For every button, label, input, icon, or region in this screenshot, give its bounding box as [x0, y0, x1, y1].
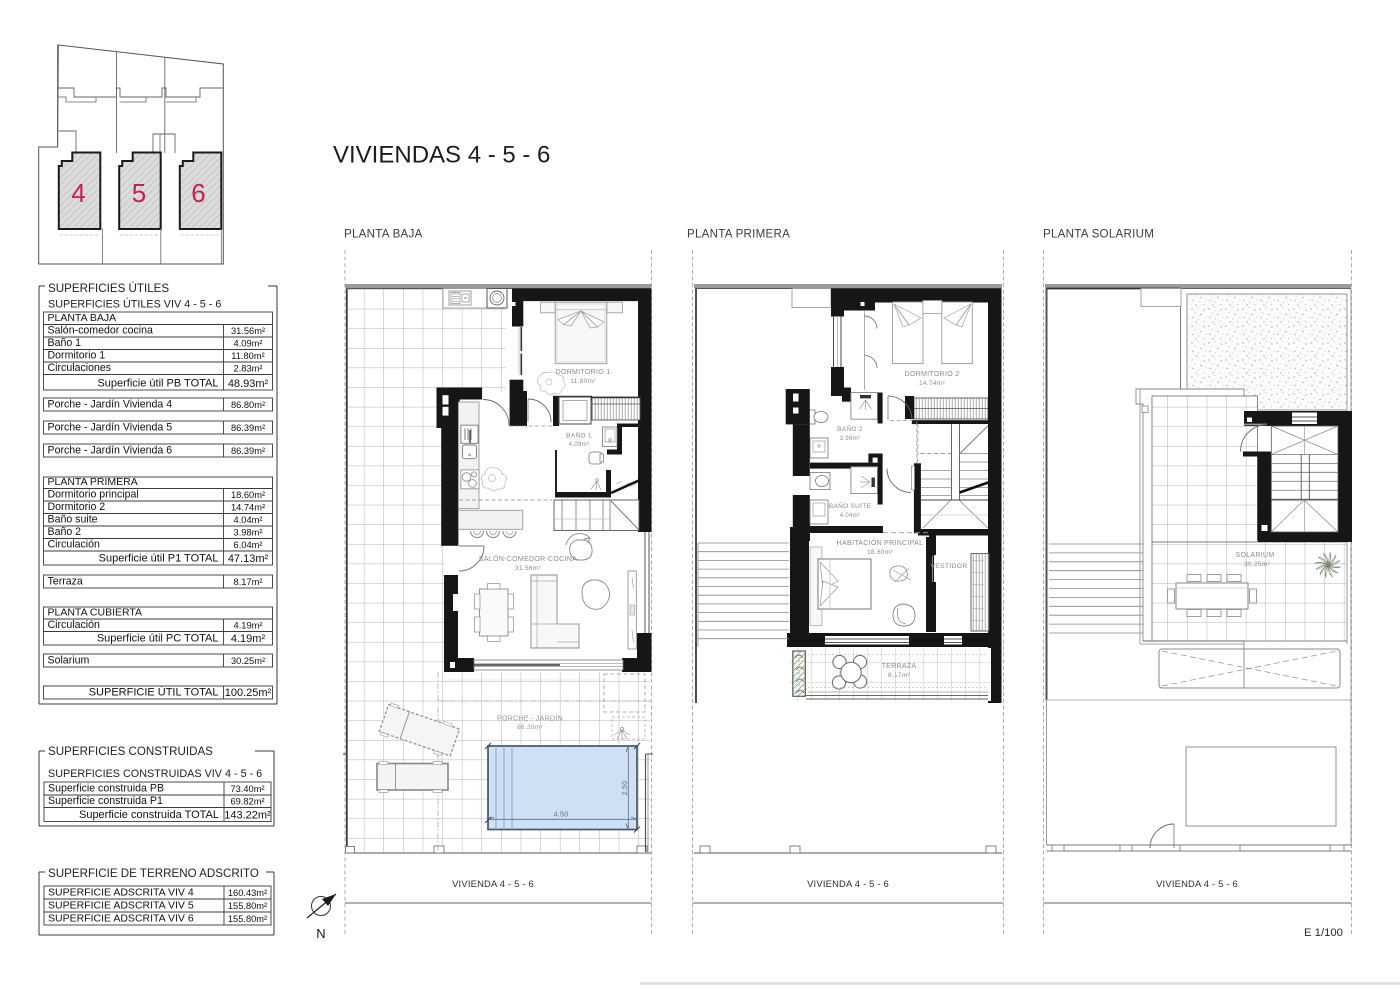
- svg-text:SALÓN-COMEDOR-COCINA: SALÓN-COMEDOR-COCINA: [479, 554, 577, 563]
- svg-text:HABITACIÓN PRINCIPAL: HABITACIÓN PRINCIPAL: [837, 538, 924, 547]
- svg-text:Superficie útil PC TOTAL: Superficie útil PC TOTAL: [97, 633, 219, 645]
- svg-text:TERRAZA: TERRAZA: [882, 663, 917, 670]
- svg-text:DORMITORIO 1: DORMITORIO 1: [556, 369, 611, 376]
- svg-text:4.19m²: 4.19m²: [231, 633, 266, 645]
- svg-text:SUPERFICIES ÚTILES: SUPERFICIES ÚTILES: [48, 282, 169, 295]
- svg-text:48.93m²: 48.93m²: [228, 378, 269, 390]
- svg-text:SUPERFICIE ÚTIL TOTAL: SUPERFICIE ÚTIL TOTAL: [89, 686, 219, 699]
- svg-text:Dormitorio 2: Dormitorio 2: [48, 501, 106, 513]
- svg-text:SUPERFICIE ADSCRITA VIV 5: SUPERFICIE ADSCRITA VIV 5: [48, 900, 194, 912]
- svg-text:BAÑO 1: BAÑO 1: [566, 431, 592, 440]
- svg-text:PLANTA PRIMERA: PLANTA PRIMERA: [48, 476, 138, 488]
- svg-text:3.98m²: 3.98m²: [234, 527, 263, 537]
- svg-text:SUPERFICIE ADSCRITA VIV 6: SUPERFICIE ADSCRITA VIV 6: [48, 913, 194, 925]
- svg-text:86.39m²: 86.39m²: [517, 724, 543, 731]
- svg-text:160.43m²: 160.43m²: [228, 888, 267, 898]
- svg-text:2.50: 2.50: [622, 781, 629, 796]
- svg-text:Superficie construida PB: Superficie construida PB: [48, 783, 164, 795]
- svg-text:14.74m²: 14.74m²: [919, 380, 945, 387]
- svg-text:4.09m²: 4.09m²: [569, 442, 589, 448]
- svg-text:86.80m²: 86.80m²: [231, 400, 265, 410]
- svg-text:4.19m²: 4.19m²: [234, 620, 263, 630]
- svg-text:VIVIENDA 4 - 5 - 6: VIVIENDA 4 - 5 - 6: [452, 878, 534, 889]
- svg-text:BAÑO 2: BAÑO 2: [837, 424, 863, 433]
- svg-text:6: 6: [191, 178, 205, 208]
- svg-text:PORCHE - JARDÍN: PORCHE - JARDÍN: [497, 714, 563, 723]
- svg-text:PLANTA BAJA: PLANTA BAJA: [344, 228, 423, 241]
- svg-text:3.98m²: 3.98m²: [840, 436, 860, 442]
- svg-text:SUPERFICIES CONSTRUIDAS VIV 4: SUPERFICIES CONSTRUIDAS VIV 4 - 5 - 6: [48, 768, 262, 780]
- svg-text:Superficie útil P1 TOTAL: Superficie útil P1 TOTAL: [99, 553, 219, 565]
- svg-text:4: 4: [71, 178, 85, 208]
- svg-text:4.50: 4.50: [554, 812, 569, 819]
- svg-text:SUPERFICIES ÚTILES VIV 4 - 5 -: SUPERFICIES ÚTILES VIV 4 - 5 - 6: [48, 298, 221, 311]
- svg-text:PLANTA CUBIERTA: PLANTA CUBIERTA: [48, 607, 143, 619]
- svg-text:2.83m²: 2.83m²: [234, 363, 263, 373]
- svg-text:5: 5: [132, 178, 146, 208]
- svg-text:30.25m²: 30.25m²: [231, 656, 265, 666]
- svg-text:8.17m²: 8.17m²: [234, 577, 263, 587]
- svg-text:11.80m²: 11.80m²: [231, 351, 264, 361]
- svg-text:VIVIENDAS 4 - 5 - 6: VIVIENDAS 4 - 5 - 6: [333, 142, 550, 169]
- svg-text:Dormitorio 1: Dormitorio 1: [48, 350, 106, 362]
- svg-text:155.80m²: 155.80m²: [228, 901, 267, 911]
- svg-text:4.04m²: 4.04m²: [840, 513, 860, 519]
- svg-text:SOLARIUM: SOLARIUM: [1236, 552, 1275, 559]
- svg-text:DORMITORIO 2: DORMITORIO 2: [905, 371, 960, 378]
- svg-text:Superficie útil PB TOTAL: Superficie útil PB TOTAL: [97, 378, 218, 390]
- svg-text:11.80m²: 11.80m²: [570, 378, 596, 385]
- svg-text:86.39m²: 86.39m²: [231, 446, 265, 456]
- svg-text:VIVIENDA 4 - 5 - 6: VIVIENDA 4 - 5 - 6: [1156, 878, 1238, 889]
- svg-text:SUPERFICIE ADSCRITA VIV 4: SUPERFICIE ADSCRITA VIV 4: [48, 887, 194, 899]
- svg-text:Porche - Jardín Vivienda 6: Porche - Jardín Vivienda 6: [48, 445, 173, 457]
- svg-text:47.13m²: 47.13m²: [228, 553, 269, 565]
- svg-text:Porche - Jardín Vivienda 5: Porche - Jardín Vivienda 5: [48, 422, 173, 434]
- svg-text:Terraza: Terraza: [48, 576, 83, 588]
- svg-text:6.04m²: 6.04m²: [234, 540, 263, 550]
- svg-text:Solarium: Solarium: [48, 655, 90, 667]
- svg-text:VESTIDOR: VESTIDOR: [930, 563, 967, 570]
- svg-text:143.22m²: 143.22m²: [224, 809, 271, 821]
- svg-text:73.40m²: 73.40m²: [230, 784, 264, 794]
- svg-text:69.82m²: 69.82m²: [230, 796, 264, 806]
- svg-text:Porche - Jardín Vivienda 4: Porche - Jardín Vivienda 4: [48, 399, 173, 411]
- svg-text:PLANTA BAJA: PLANTA BAJA: [48, 312, 117, 324]
- svg-text:SUPERFICIE DE TERRENO ADSCRITO: SUPERFICIE DE TERRENO ADSCRITO: [48, 867, 259, 880]
- svg-text:100.25m²: 100.25m²: [225, 687, 272, 699]
- svg-text:31.56m²: 31.56m²: [231, 326, 265, 336]
- svg-text:18.60m²: 18.60m²: [231, 490, 265, 500]
- svg-text:PLANTA PRIMERA: PLANTA PRIMERA: [687, 228, 790, 241]
- svg-text:Baño 1: Baño 1: [48, 337, 82, 349]
- svg-text:30.25m²: 30.25m²: [1244, 561, 1270, 568]
- svg-text:SUPERFICIES CONSTRUIDAS: SUPERFICIES CONSTRUIDAS: [48, 745, 213, 758]
- svg-text:18.60m²: 18.60m²: [867, 549, 893, 556]
- svg-text:Baño 2: Baño 2: [48, 526, 82, 538]
- svg-text:155.80m²: 155.80m²: [228, 914, 267, 924]
- svg-text:Circulación: Circulación: [48, 539, 101, 551]
- svg-text:VIVIENDA 4 - 5 - 6: VIVIENDA 4 - 5 - 6: [807, 878, 889, 889]
- svg-text:86.39m²: 86.39m²: [231, 423, 265, 433]
- svg-text:PLANTA SOLARIUM: PLANTA SOLARIUM: [1043, 228, 1154, 241]
- svg-text:Baño suite: Baño suite: [48, 514, 98, 526]
- svg-text:Circulación: Circulación: [48, 619, 101, 631]
- svg-text:E 1/100: E 1/100: [1304, 927, 1343, 939]
- svg-text:BAÑO SUITE: BAÑO SUITE: [829, 501, 872, 510]
- svg-text:8.17m²: 8.17m²: [888, 672, 911, 679]
- svg-text:Dormitorio principal: Dormitorio principal: [48, 489, 139, 501]
- svg-text:Superficie construida P1: Superficie construida P1: [48, 795, 163, 807]
- svg-text:Salón-comedor cocina: Salón-comedor cocina: [48, 325, 154, 337]
- svg-text:14.74m²: 14.74m²: [231, 502, 265, 512]
- svg-text:Circulaciones: Circulaciones: [48, 362, 112, 374]
- svg-text:31.56m²: 31.56m²: [515, 565, 541, 572]
- svg-text:4.09m²: 4.09m²: [234, 338, 263, 348]
- svg-text:Superficie construida TOTAL: Superficie construida TOTAL: [79, 809, 219, 821]
- svg-text:4.04m²: 4.04m²: [234, 515, 263, 525]
- svg-text:N: N: [316, 926, 325, 941]
